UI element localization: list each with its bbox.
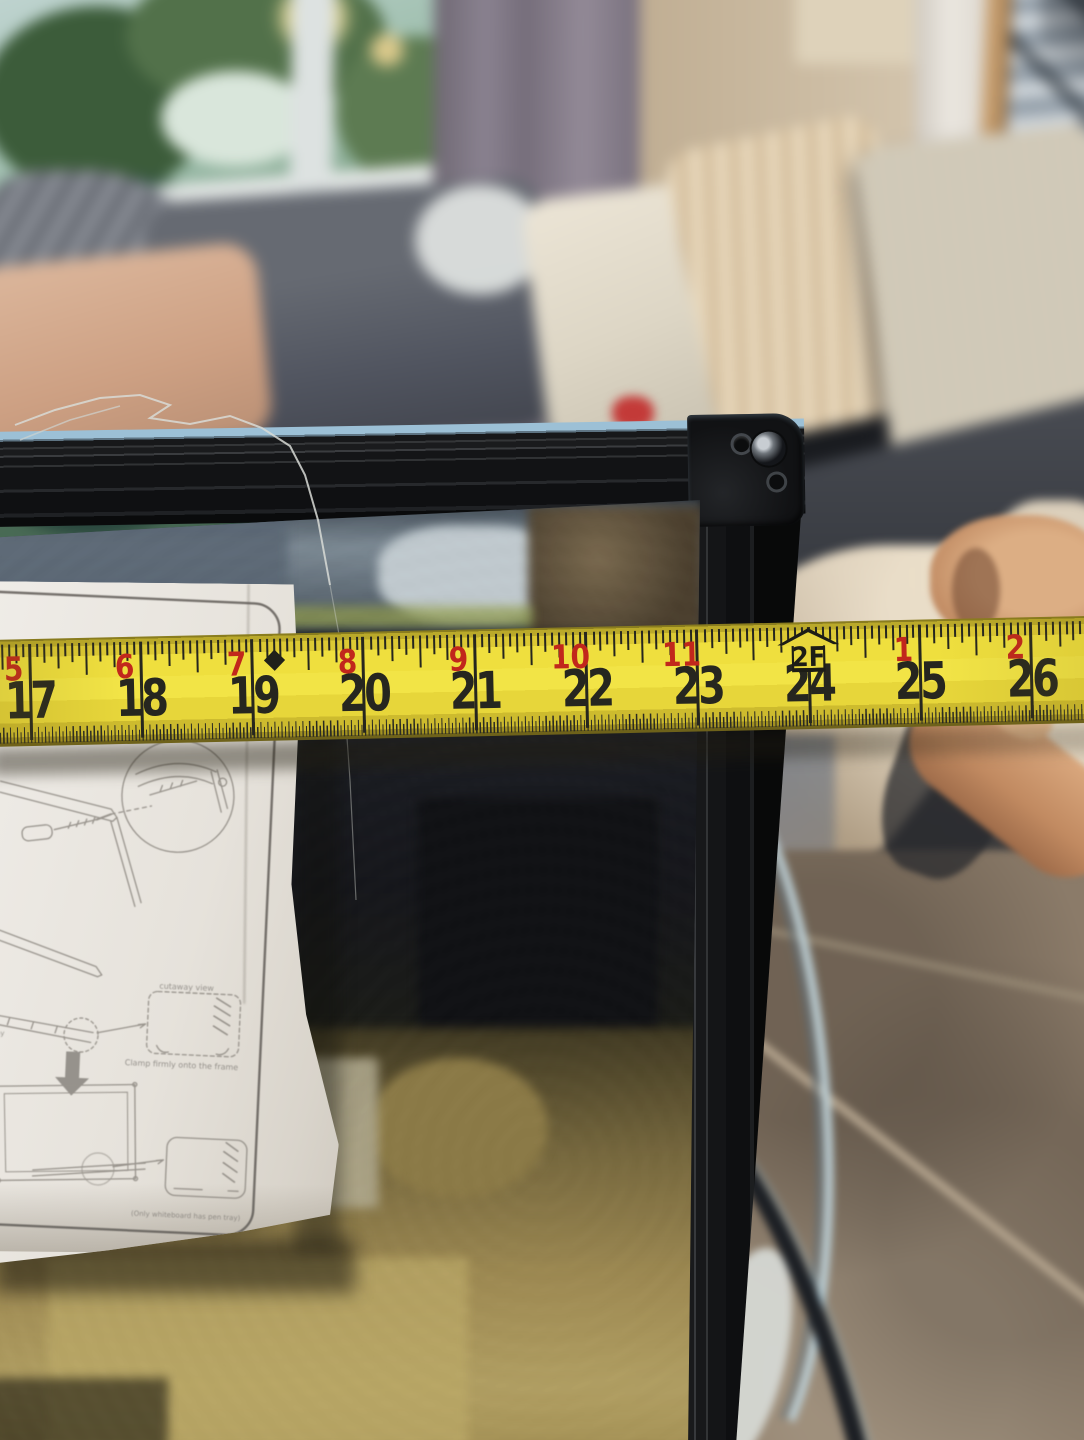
film-gold-highlight bbox=[48, 1258, 468, 1440]
film-dark-streak bbox=[418, 798, 658, 1178]
tape-tick bbox=[961, 624, 963, 643]
tape-tick bbox=[279, 639, 282, 664]
tape-tick bbox=[405, 636, 407, 655]
tape-tick bbox=[64, 643, 66, 656]
tape-tick bbox=[968, 624, 970, 637]
red-bottle-cap bbox=[612, 396, 654, 430]
tape-inch-number: 24 bbox=[783, 659, 835, 711]
tape-tick bbox=[558, 632, 561, 657]
sky-patch bbox=[161, 71, 311, 166]
foliage bbox=[31, 176, 241, 346]
tape-tick bbox=[370, 637, 372, 650]
tape-tick bbox=[300, 638, 302, 651]
tape-tick bbox=[516, 633, 518, 652]
tape-tick bbox=[850, 626, 852, 645]
tape-inch-number: 20 bbox=[338, 668, 390, 720]
wall bbox=[640, 0, 1020, 400]
tape-inch-line bbox=[1029, 622, 1034, 718]
whiteboard-frame-right bbox=[680, 460, 810, 1440]
tape-tick bbox=[196, 640, 199, 672]
caption-tray-note: (Only whiteboard has pen tray) bbox=[131, 1209, 241, 1222]
tape-tick bbox=[391, 636, 394, 661]
tape-tick bbox=[78, 643, 80, 656]
tape-tick bbox=[147, 641, 149, 654]
tape-tick bbox=[725, 629, 728, 654]
tape-tick bbox=[495, 634, 497, 647]
tape-tick bbox=[43, 644, 45, 663]
tape-inch-number: 22 bbox=[561, 663, 613, 715]
tape-tick bbox=[606, 631, 608, 644]
film-gold-wrinkle bbox=[368, 1058, 548, 1198]
tape-tick bbox=[829, 627, 831, 640]
caption-clamp: Clamp firmly onto the frame bbox=[125, 1058, 239, 1072]
film-bright-reflection bbox=[378, 526, 568, 621]
tape-tick bbox=[933, 624, 935, 643]
rug-pattern-line bbox=[735, 920, 1084, 1027]
tape-tick bbox=[801, 627, 803, 640]
tape-tick bbox=[891, 625, 894, 650]
tape-inch-number: 25 bbox=[895, 656, 947, 708]
bokeh-light bbox=[471, 0, 543, 38]
tape-tick bbox=[1, 645, 4, 670]
tape-tick bbox=[8, 644, 10, 657]
tape-inch-line bbox=[807, 627, 812, 723]
gray-throw-blanket bbox=[0, 170, 195, 340]
screw-hole-large bbox=[751, 431, 786, 466]
tape-tick bbox=[544, 633, 546, 652]
tape-tick bbox=[126, 642, 128, 661]
tape-inch-line bbox=[28, 644, 33, 740]
tape-tick bbox=[349, 637, 351, 656]
tape-tick bbox=[718, 629, 720, 642]
tape-tick bbox=[231, 640, 233, 653]
tape-tick bbox=[592, 632, 594, 645]
tape-tick bbox=[1065, 621, 1067, 634]
whiteboard-corner-cap bbox=[687, 413, 805, 527]
window-mullion bbox=[426, 0, 473, 586]
wood-rail bbox=[969, 0, 1013, 404]
caption-pen-tray: pen tray bbox=[0, 1028, 5, 1037]
tape-tick bbox=[467, 634, 469, 647]
tape-tick bbox=[565, 632, 567, 645]
tape-tick bbox=[1044, 622, 1046, 641]
film-brown-reflection bbox=[528, 506, 703, 636]
tape-tick bbox=[57, 643, 60, 668]
tape-tick bbox=[133, 642, 135, 655]
tape-tick bbox=[203, 640, 205, 653]
striped-pillow bbox=[661, 111, 934, 449]
tape-tick bbox=[168, 641, 171, 666]
tape-tick bbox=[836, 626, 839, 651]
tape-tick bbox=[50, 644, 52, 657]
tape-tick bbox=[328, 637, 330, 650]
tape-tick bbox=[905, 625, 907, 644]
tape-tick bbox=[794, 627, 796, 646]
tape-tick bbox=[335, 637, 338, 662]
tape-inch-number: 19 bbox=[227, 671, 279, 723]
bokeh-light bbox=[271, 0, 356, 53]
glass-table-reflection bbox=[705, 735, 835, 1115]
tape-inch-number: 18 bbox=[116, 673, 168, 725]
tape-tick bbox=[947, 624, 950, 649]
photo-scene: cutaway view Clamp firmly onto the frame… bbox=[0, 0, 1084, 1440]
tape-tick bbox=[634, 631, 636, 644]
windowsill-light bbox=[415, 185, 545, 295]
tape-tick bbox=[613, 631, 616, 656]
tape-tick bbox=[572, 632, 574, 651]
tape-tick bbox=[551, 633, 553, 646]
tape-tick bbox=[982, 623, 984, 636]
tape-tick bbox=[1010, 623, 1012, 636]
tape-tick bbox=[857, 626, 859, 639]
tape-inch-line bbox=[361, 637, 366, 733]
tape-tick bbox=[655, 630, 657, 649]
tape-tick bbox=[1017, 622, 1019, 641]
foot-marker-label: 2F bbox=[780, 643, 836, 671]
foliage bbox=[0, 6, 212, 196]
tape-tick bbox=[926, 624, 928, 637]
tape-tick bbox=[1072, 621, 1074, 640]
tape-tick bbox=[912, 625, 914, 638]
tape-tick bbox=[578, 632, 580, 645]
tape-tick bbox=[446, 635, 449, 660]
tape-foot-inch-number: 7 bbox=[226, 647, 246, 680]
tape-tick bbox=[502, 634, 505, 659]
tape-tick bbox=[92, 643, 94, 656]
tape-tick bbox=[245, 639, 247, 652]
foliage bbox=[126, 0, 386, 111]
tape-tick bbox=[738, 629, 740, 648]
tape-tick bbox=[822, 627, 824, 646]
tape-inch-line bbox=[695, 629, 700, 725]
tape-tick bbox=[377, 636, 379, 655]
tape-inch-number: 21 bbox=[450, 666, 502, 718]
couch-base-shadow bbox=[758, 741, 1084, 1200]
tape-tick bbox=[627, 631, 629, 650]
tape-tick bbox=[460, 635, 462, 654]
tape-tick bbox=[154, 641, 156, 660]
tape-foot-inch-number: 8 bbox=[337, 645, 357, 678]
tape-tick bbox=[509, 634, 511, 647]
tape-tick bbox=[273, 639, 275, 652]
tape-tick bbox=[745, 628, 747, 641]
tape-tick bbox=[620, 631, 622, 644]
tape-tick bbox=[314, 638, 316, 651]
tape-foot-inch-number: 11 bbox=[661, 637, 701, 671]
tape-tick bbox=[884, 625, 886, 638]
tape-foot-inch-number: 5 bbox=[4, 652, 24, 685]
tape-tick bbox=[481, 634, 483, 647]
tape-tick bbox=[690, 630, 692, 643]
tape-tick bbox=[356, 637, 358, 650]
window-frame-bar bbox=[0, 161, 471, 262]
tape-tick bbox=[676, 630, 678, 643]
tape-tick bbox=[342, 637, 344, 650]
tape-tick bbox=[384, 636, 386, 649]
tape-tick bbox=[759, 628, 761, 641]
rug bbox=[690, 850, 1084, 1440]
tape-inch-number: 26 bbox=[1006, 654, 1058, 706]
tape-tick bbox=[996, 623, 998, 636]
screw-hole-small bbox=[733, 436, 749, 452]
wall-panel bbox=[795, 0, 970, 64]
tape-tick bbox=[439, 635, 441, 648]
tape-tick bbox=[412, 636, 414, 649]
tape-tick bbox=[711, 629, 713, 648]
door-trim bbox=[915, 0, 1000, 344]
tape-tick bbox=[683, 630, 685, 649]
knit-pillow bbox=[855, 122, 1084, 499]
tape-tick bbox=[210, 640, 212, 659]
tape-tick bbox=[22, 644, 24, 657]
tape-tick bbox=[426, 635, 428, 648]
tape-tick bbox=[1003, 623, 1006, 648]
foot-marker-arrow-inner bbox=[781, 631, 836, 668]
tape-foot-marker: 2F bbox=[777, 627, 840, 672]
tape-stud-diamond-icon bbox=[264, 650, 285, 671]
tape-tick bbox=[15, 644, 17, 663]
tape-tick bbox=[293, 638, 295, 657]
tape-tick bbox=[286, 638, 288, 651]
tape-tick bbox=[864, 626, 867, 658]
foliage bbox=[336, 36, 496, 186]
tape-tick bbox=[530, 633, 533, 665]
tape-foot-inch-number: 6 bbox=[115, 650, 135, 683]
tape-tick bbox=[307, 638, 310, 670]
tape-tick bbox=[217, 640, 219, 653]
slatted-panel bbox=[988, 0, 1084, 424]
tape-tick bbox=[871, 626, 873, 639]
tape-foot-inch-number: 9 bbox=[449, 642, 469, 675]
tape-foot-inch-number: 1 bbox=[894, 633, 914, 666]
tape-tick bbox=[433, 635, 435, 654]
tape-tick bbox=[752, 628, 755, 660]
tape-tick bbox=[523, 633, 525, 646]
tape-inch-line bbox=[584, 632, 589, 728]
glass-table-edge bbox=[549, 720, 857, 1440]
tape-tick bbox=[773, 628, 775, 641]
tape-tick bbox=[99, 642, 101, 661]
tape-tick bbox=[940, 624, 942, 637]
cream-pillow bbox=[520, 180, 734, 451]
tape-tick bbox=[119, 642, 121, 655]
tape-tick bbox=[398, 636, 400, 649]
tape-tick bbox=[815, 627, 817, 640]
tape-tick bbox=[1038, 622, 1040, 635]
tape-tick bbox=[175, 641, 177, 654]
tape-tick bbox=[766, 628, 768, 647]
tape-foot-inch-number: 2 bbox=[1005, 630, 1025, 663]
tape-inch-line bbox=[473, 634, 478, 730]
tape-tick bbox=[975, 623, 978, 655]
tape-tick bbox=[780, 628, 783, 653]
tape-tick bbox=[989, 623, 991, 642]
tape-tick bbox=[843, 626, 845, 639]
table-reflection bbox=[673, 1238, 811, 1440]
couch-back bbox=[520, 90, 1084, 560]
tape-tick bbox=[182, 641, 184, 660]
tape-tick bbox=[161, 641, 163, 654]
tape-tick bbox=[259, 639, 261, 652]
tape-tick bbox=[648, 631, 650, 644]
foot-marker-arrow-icon bbox=[777, 627, 840, 672]
screw-hole-small bbox=[769, 474, 784, 489]
slat-shadows bbox=[988, 0, 1084, 424]
tape-inch-line bbox=[139, 642, 144, 738]
tape-tick bbox=[106, 642, 108, 655]
bokeh-light bbox=[366, 31, 408, 69]
tape-tick bbox=[599, 632, 601, 651]
tape-inch-number: 17 bbox=[4, 676, 56, 728]
tape-tick bbox=[224, 640, 227, 665]
glass-edge-dark-line bbox=[549, 727, 845, 1440]
tape-tick bbox=[71, 643, 73, 662]
tape-tick bbox=[537, 633, 539, 646]
tape-tick bbox=[113, 642, 116, 667]
tape-tick bbox=[1079, 621, 1081, 634]
tape-tick bbox=[1058, 622, 1061, 647]
tape-tick bbox=[238, 639, 240, 658]
table-metal-frame bbox=[451, 1035, 974, 1440]
corner-shadow bbox=[1040, 0, 1084, 124]
glass-edge-highlight bbox=[549, 720, 857, 1440]
tape-inch-number: 23 bbox=[672, 661, 724, 713]
tape-tick bbox=[898, 625, 900, 638]
curtain bbox=[430, 0, 721, 551]
tape-tick bbox=[669, 630, 672, 655]
tape-tick bbox=[704, 629, 706, 642]
tape-tick bbox=[189, 641, 191, 654]
tape-tick bbox=[641, 631, 644, 663]
tape-tick bbox=[85, 643, 88, 675]
tape-tick bbox=[266, 639, 268, 658]
tape-inch-line bbox=[918, 625, 923, 721]
tape-tick bbox=[321, 638, 323, 657]
tape-tick bbox=[36, 644, 38, 657]
tape-tick bbox=[787, 627, 789, 640]
tape-tick bbox=[488, 634, 490, 653]
tape-tick bbox=[662, 630, 664, 643]
tape-tick bbox=[878, 626, 880, 645]
tape-inch-line bbox=[250, 639, 255, 735]
tape-tick bbox=[419, 636, 422, 668]
tape-tick bbox=[453, 635, 455, 648]
tape-tick bbox=[954, 624, 956, 637]
couch-seat bbox=[680, 380, 1084, 610]
tape-tick bbox=[1051, 622, 1053, 635]
tape-tick bbox=[1024, 622, 1026, 635]
tape-foot-inch-number: 10 bbox=[550, 640, 590, 674]
film-corner-shadow bbox=[0, 1378, 168, 1440]
rug-pattern-line bbox=[717, 1009, 1084, 1361]
tape-tick bbox=[732, 629, 734, 642]
